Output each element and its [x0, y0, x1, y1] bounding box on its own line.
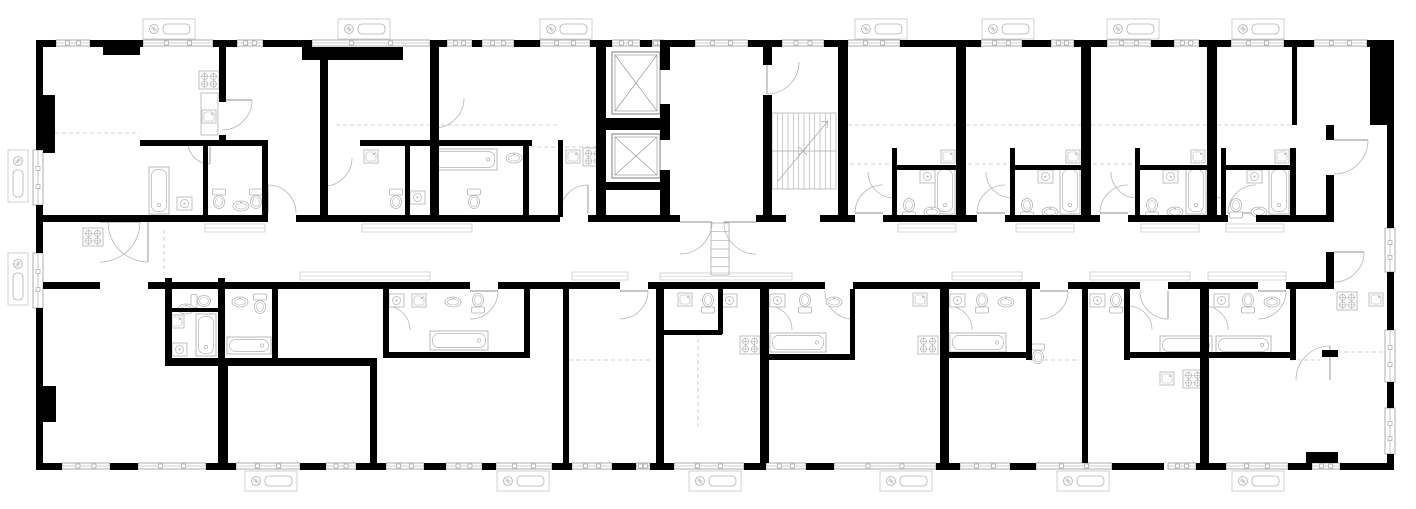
window	[834, 463, 936, 469]
toilet-icon	[390, 189, 403, 209]
washer-icon	[1090, 294, 1105, 307]
wall	[1168, 282, 1258, 289]
sink-icon	[1160, 372, 1174, 385]
window	[612, 40, 640, 46]
wall	[472, 40, 482, 47]
wall	[482, 463, 496, 470]
wall	[656, 289, 664, 463]
wall	[272, 282, 278, 358]
sink-icon	[1066, 150, 1080, 163]
washer-icon	[950, 294, 965, 307]
washer-icon	[770, 294, 785, 307]
wall	[1306, 452, 1338, 463]
wall	[1326, 215, 1334, 222]
door-arc	[948, 306, 972, 330]
wall	[656, 330, 722, 335]
wall	[1288, 463, 1312, 470]
wall	[430, 47, 439, 217]
windows-layer	[33, 40, 1395, 469]
wall	[218, 366, 228, 463]
wall	[1135, 148, 1140, 218]
wall	[296, 215, 560, 222]
ledge	[362, 224, 472, 232]
wall	[1010, 463, 1036, 470]
wall	[1124, 289, 1130, 360]
window	[312, 40, 430, 46]
bathtub-icon	[149, 167, 169, 214]
door-arc	[1140, 291, 1168, 319]
basin-icon	[232, 297, 248, 307]
window	[1385, 330, 1395, 382]
window	[1385, 228, 1395, 272]
window	[1312, 463, 1340, 469]
wall	[1290, 148, 1296, 218]
wall	[892, 148, 897, 218]
ac-unit-icon	[245, 471, 297, 491]
wall	[1387, 40, 1394, 228]
window	[326, 463, 356, 469]
washer-icon	[920, 170, 935, 183]
wall	[43, 386, 56, 422]
washer-icon	[172, 343, 187, 356]
ac-unit-icon	[8, 253, 28, 305]
washer-icon	[389, 294, 404, 307]
toilet-icon	[1110, 294, 1123, 314]
elevator-shaft-icon	[612, 52, 660, 114]
door-arc	[386, 306, 410, 330]
wall	[1010, 148, 1015, 218]
toilet-icon	[472, 294, 485, 314]
window	[1036, 463, 1112, 469]
toilet-icon	[702, 294, 715, 314]
washer-icon	[1163, 170, 1178, 183]
window	[1051, 40, 1074, 46]
toilet-icon	[213, 189, 226, 209]
bathtub-icon	[433, 149, 497, 170]
wall	[165, 308, 218, 312]
stove-icon	[199, 71, 219, 89]
wall	[853, 282, 1040, 289]
wall	[1326, 175, 1334, 215]
door-arc	[1100, 185, 1128, 213]
toilet-icon	[250, 189, 263, 209]
wall	[203, 146, 208, 216]
sink-icon	[941, 150, 955, 163]
wall	[1292, 47, 1297, 125]
wall	[1221, 148, 1226, 218]
wall	[1284, 40, 1314, 47]
ledge	[1090, 272, 1190, 280]
toilet-icon	[1230, 199, 1243, 219]
window	[33, 253, 43, 308]
basin-icon	[1264, 297, 1280, 307]
ledge	[205, 224, 265, 232]
wall	[356, 463, 386, 470]
wall	[36, 40, 43, 150]
window	[1231, 40, 1284, 46]
wall	[165, 358, 377, 366]
washer-icon	[1247, 170, 1262, 183]
toilet-icon	[191, 295, 211, 308]
window	[782, 40, 824, 46]
basin-icon	[826, 297, 842, 307]
stove-icon	[918, 336, 938, 354]
ac-unit-icon	[982, 19, 1034, 39]
wall	[660, 104, 670, 140]
toilet-icon	[1032, 344, 1045, 364]
window	[236, 463, 300, 469]
ledge	[300, 272, 430, 280]
toilet-icon	[254, 294, 267, 314]
basin-icon	[445, 297, 461, 307]
core-layer	[612, 52, 836, 275]
window	[1385, 408, 1395, 454]
ledge	[952, 272, 1022, 280]
wall	[148, 282, 470, 289]
door-arc	[108, 222, 148, 262]
sink-icon	[1191, 150, 1205, 163]
wall	[90, 40, 143, 47]
wall	[1387, 382, 1394, 408]
window	[386, 463, 424, 469]
window	[540, 40, 590, 46]
wall	[383, 289, 389, 357]
wall	[1081, 47, 1091, 217]
window	[981, 40, 1022, 46]
door-arc	[977, 185, 1005, 213]
wall	[596, 118, 670, 130]
washer-icon	[410, 191, 425, 204]
wall	[1196, 463, 1226, 470]
sink-icon	[202, 110, 216, 123]
bathtub-icon	[950, 333, 1006, 352]
wall	[936, 463, 960, 470]
wall	[370, 358, 377, 463]
wall	[140, 140, 268, 146]
wall	[940, 289, 949, 463]
window	[496, 463, 552, 469]
sink-icon	[170, 315, 184, 328]
door-arc	[986, 172, 1012, 198]
wall	[1326, 252, 1334, 289]
wall	[1326, 125, 1334, 140]
window	[237, 40, 263, 46]
wall	[1074, 40, 1107, 47]
sink-icon	[678, 293, 692, 306]
bathtub-icon	[1269, 167, 1289, 214]
wall	[1204, 352, 1296, 358]
bathtub-icon	[1186, 167, 1206, 214]
wall	[1140, 463, 1164, 470]
ledge	[1208, 272, 1286, 280]
wall	[430, 40, 447, 47]
stove-icon	[740, 336, 760, 354]
wall	[1200, 289, 1209, 463]
wall	[806, 463, 834, 470]
wall	[1221, 165, 1290, 170]
ledge	[1226, 224, 1284, 232]
window	[848, 40, 900, 46]
wall	[43, 95, 55, 153]
ac-unit-icon	[338, 19, 390, 39]
wall	[1387, 454, 1394, 470]
wall	[43, 282, 100, 289]
window	[674, 463, 744, 469]
wall	[552, 463, 572, 470]
wall	[596, 182, 670, 190]
ac-unit-icon	[540, 19, 592, 39]
wall	[1286, 282, 1330, 289]
window	[1226, 463, 1288, 469]
wall	[1026, 289, 1032, 360]
bathtub-icon	[1216, 336, 1271, 354]
ledge	[1016, 224, 1074, 232]
stove-icon	[83, 228, 103, 246]
toilet-icon	[799, 294, 812, 314]
wall	[612, 463, 636, 470]
wall	[838, 40, 848, 217]
washer-icon	[722, 294, 737, 307]
wall	[206, 463, 236, 470]
sink-icon	[1369, 293, 1383, 306]
wall	[110, 463, 138, 470]
door-arc	[767, 62, 799, 94]
wall	[1322, 350, 1338, 357]
wall	[1022, 40, 1051, 47]
door-arc	[1040, 291, 1068, 319]
basin-icon	[233, 201, 249, 211]
window	[62, 463, 110, 469]
door-arc	[768, 306, 792, 330]
window	[33, 150, 43, 205]
wall	[760, 289, 769, 463]
wall	[660, 170, 670, 217]
wall	[213, 40, 237, 47]
wall	[744, 463, 766, 470]
wall	[36, 308, 43, 470]
basin-icon	[998, 297, 1014, 307]
window	[766, 463, 806, 469]
bathtub-icon	[935, 167, 955, 214]
window	[1168, 463, 1196, 469]
door-arc	[1334, 140, 1368, 174]
door-arc	[855, 185, 883, 213]
window	[1314, 40, 1367, 46]
wall	[1370, 47, 1387, 125]
wall	[1010, 165, 1081, 170]
window	[56, 40, 90, 46]
window	[572, 463, 612, 469]
window	[1174, 40, 1199, 46]
toilet-icon	[1242, 294, 1255, 314]
sink-icon	[566, 150, 580, 163]
window	[1107, 40, 1151, 46]
sink-icon	[913, 293, 927, 306]
wall	[640, 40, 652, 47]
toilet-icon	[468, 189, 481, 209]
ac-unit-icon	[143, 19, 195, 39]
door-arc	[680, 222, 712, 254]
wall	[660, 40, 670, 70]
wall	[424, 463, 446, 470]
wall	[36, 205, 43, 253]
ladder-icon	[711, 223, 729, 275]
bathtub-icon	[430, 331, 488, 350]
wall	[945, 352, 1032, 358]
wall	[383, 352, 530, 358]
wall	[892, 165, 956, 170]
wall	[1199, 40, 1231, 47]
bathtub-icon	[196, 314, 216, 356]
wall	[648, 282, 825, 289]
wall	[302, 47, 403, 60]
ledge	[660, 273, 792, 280]
ac-unit-icon	[880, 471, 932, 491]
washer-icon	[1038, 170, 1053, 183]
wall	[956, 47, 966, 217]
wall	[1387, 272, 1394, 330]
wall	[514, 40, 540, 47]
window	[143, 40, 213, 46]
wall	[558, 140, 563, 217]
window	[695, 40, 748, 46]
wall	[1290, 289, 1296, 360]
wall	[900, 40, 981, 47]
door-arc	[620, 291, 648, 319]
door-arc	[1128, 306, 1152, 330]
wall	[165, 278, 172, 358]
wall	[360, 140, 532, 146]
ac-unit-icon	[1232, 471, 1284, 491]
ac-unit-icon	[497, 471, 549, 491]
door-arc	[324, 158, 352, 186]
staircase-icon	[772, 113, 836, 189]
wall	[765, 354, 855, 360]
wall	[262, 140, 268, 222]
sink-icon	[412, 294, 426, 307]
wall	[523, 146, 529, 216]
door-arc	[560, 185, 588, 213]
wall	[498, 282, 620, 289]
stove-icon	[1337, 292, 1357, 310]
floor-plan-svg	[0, 0, 1416, 509]
ledge	[572, 272, 628, 280]
door-arc	[100, 222, 140, 262]
walls-layer	[36, 40, 1394, 470]
wall	[218, 278, 225, 358]
door-arc	[268, 185, 296, 213]
window	[447, 40, 472, 46]
ledge	[1141, 224, 1199, 232]
wall	[718, 289, 723, 334]
wall	[320, 47, 328, 217]
wall	[650, 463, 674, 470]
wall	[103, 47, 140, 55]
door-arc	[222, 100, 252, 130]
ac-unit-icon	[1057, 471, 1109, 491]
sink-icon	[1275, 150, 1289, 163]
wall	[43, 215, 268, 222]
wall	[763, 95, 772, 217]
wall	[405, 146, 410, 216]
wall	[1068, 282, 1140, 289]
ac-unit-icon	[689, 471, 741, 491]
sink-icon	[364, 150, 378, 163]
wall	[300, 463, 326, 470]
wall	[1082, 289, 1088, 463]
toilet-icon	[976, 294, 989, 314]
floor-plan-canvas	[0, 0, 1416, 509]
wall	[263, 40, 312, 47]
window	[482, 40, 514, 46]
wall	[524, 289, 530, 357]
wall	[1112, 463, 1140, 470]
window	[960, 463, 1010, 469]
wall	[1124, 352, 1204, 358]
bathtub-icon	[227, 337, 271, 354]
window	[446, 463, 482, 469]
wall	[1135, 165, 1207, 170]
ledge	[898, 224, 956, 232]
window	[636, 463, 650, 469]
wall	[219, 47, 226, 102]
bathtub-icon	[770, 333, 826, 352]
ac-unit-icon	[1232, 19, 1284, 39]
ac-unit-icon	[855, 19, 907, 39]
bathtub-icon	[1060, 167, 1080, 214]
washer-icon	[1214, 294, 1229, 307]
wall	[763, 40, 772, 65]
wall	[1207, 47, 1217, 217]
ac-unit-icon	[8, 150, 28, 202]
wall	[820, 215, 855, 222]
basin-icon	[506, 153, 522, 163]
wall	[850, 289, 855, 359]
wall	[1340, 463, 1394, 470]
washer-icon	[177, 197, 192, 210]
elevator-shaft-icon	[612, 134, 660, 178]
window	[138, 463, 206, 469]
wall	[1151, 40, 1174, 47]
wall	[563, 289, 569, 463]
ac-unit-icon	[1107, 19, 1159, 39]
door-arc	[1334, 252, 1364, 282]
